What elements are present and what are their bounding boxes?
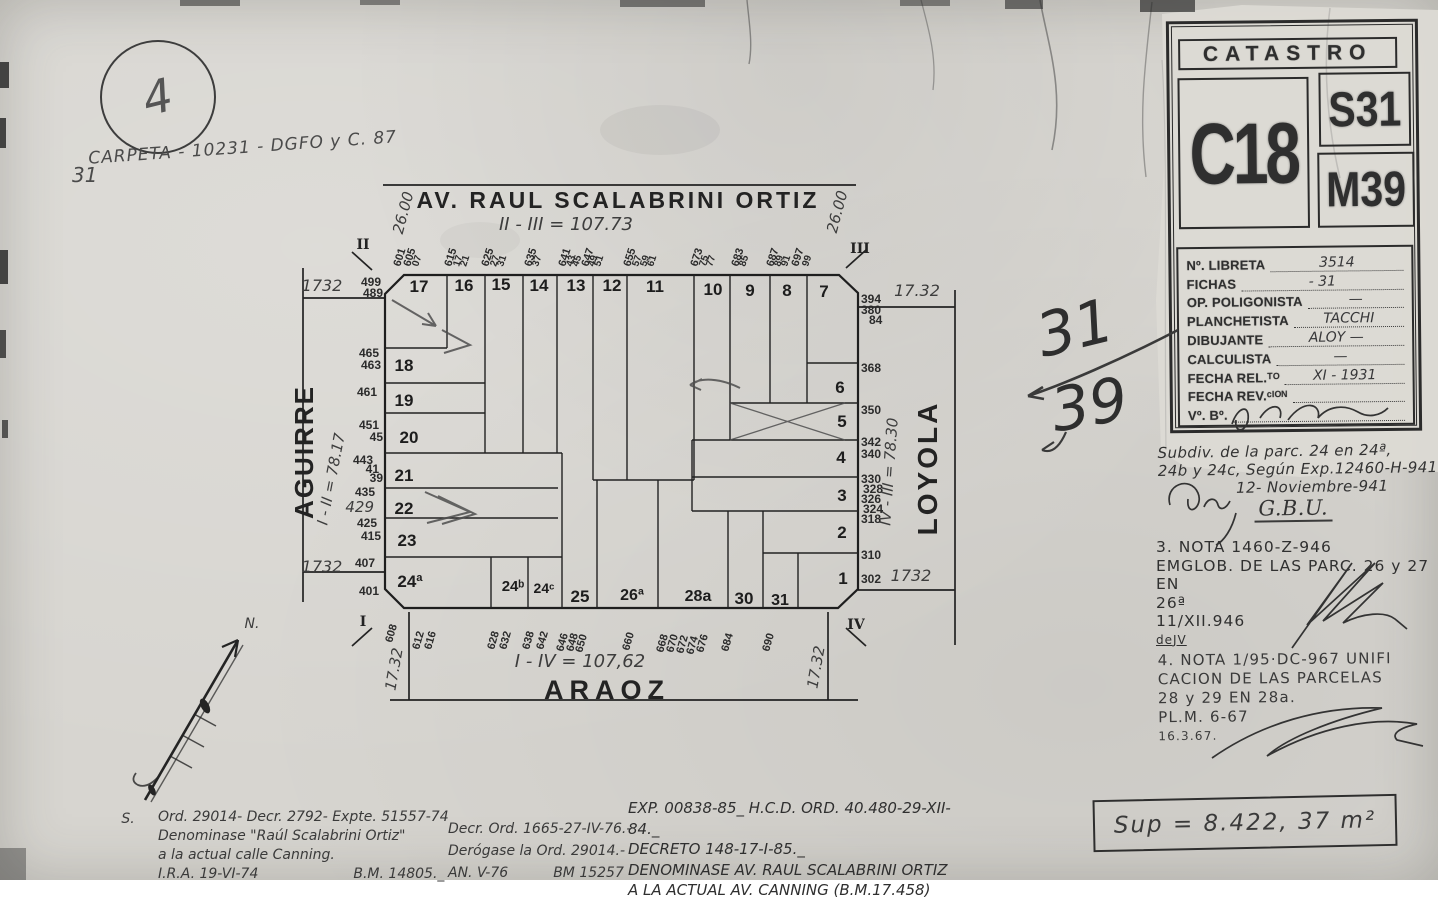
block-outline: [385, 275, 858, 608]
stamp-field-row: FICHAS - 31: [1186, 271, 1403, 292]
handwritten-annotation: 26.00: [389, 190, 418, 236]
catastro-stamp: CATASTRO C18 S31 M39 Nº. LIBRETA 3514 FI…: [1166, 19, 1422, 434]
stamp-field-row: Nº. LIBRETA 3514: [1186, 252, 1403, 273]
address-number-label: 302: [861, 572, 881, 586]
parcel-number-label: 11: [646, 277, 664, 296]
parcel-number-label: 12: [603, 276, 622, 295]
parcel-number-label: 1: [838, 569, 847, 588]
parcel-number-label: 9: [745, 281, 754, 300]
parcel-number-label: 28a: [685, 588, 712, 605]
address-number-label: 318: [861, 512, 881, 526]
address-number-label: 628: [485, 630, 502, 651]
note-line: 4. NOTA 1/95·DC-967 UNIFI: [1158, 649, 1438, 670]
field-value: 3514: [1270, 255, 1403, 272]
parcel-lines: [385, 275, 858, 608]
parcel-number-label: 16: [455, 276, 474, 295]
field-label: OP. POLIGONISTA: [1187, 294, 1303, 310]
address-number-label: 350: [861, 403, 881, 417]
parcel-number-label: 8: [782, 281, 791, 300]
parcel-number-label: 6: [835, 378, 844, 397]
address-number-label: 27: [488, 254, 502, 268]
parcel-number-label: 18: [395, 356, 414, 375]
corner-roman-numeral: III: [850, 241, 870, 257]
map-labels: AV. RAUL SCALABRINI ORTIZARAOZAGUIRRELOY…: [121, 187, 1133, 827]
address-number-label: 489: [363, 286, 383, 300]
parcel-number-label: 26ª: [620, 587, 644, 604]
seccion-code: S31: [1328, 81, 1402, 138]
field-label: Vº. Bº.: [1188, 408, 1228, 423]
address-number-label: 650: [573, 633, 590, 654]
address-number-label: 57: [630, 254, 644, 268]
address-number-label: 31: [495, 254, 509, 268]
address-number-label: 77: [704, 254, 718, 268]
ord-line: EXP. 00838-85_ H.C.D. ORD. 40.480-29-XII…: [628, 798, 968, 839]
street-name-label: AV. RAUL SCALABRINI ORTIZ: [417, 187, 820, 213]
stamp-field-row: OP. POLIGONISTA —: [1187, 289, 1404, 310]
address-number-label: 635: [522, 247, 539, 268]
address-number-label: 443: [353, 453, 373, 467]
address-number-label: 435: [355, 485, 375, 499]
parcel-number-label: 7: [819, 282, 828, 301]
address-number-label: 615: [442, 247, 459, 268]
handwritten-annotation: 17.32: [894, 281, 940, 300]
ord-line: Denominase "Raúl Scalabrini Ortiz": [158, 827, 458, 846]
address-number-label: 394: [861, 292, 881, 306]
parcel-number-label: 30: [735, 589, 754, 608]
note-line: 11/XII.946: [1156, 612, 1438, 631]
parcel-number-label: 15: [492, 275, 511, 294]
stamp-fields-table: Nº. LIBRETA 3514 FICHAS - 31 OP. POLIGON…: [1176, 245, 1415, 427]
address-number-label: 668: [654, 633, 671, 654]
handwritten-annotation: II - III = 107.73: [499, 214, 633, 235]
sheet-fraction-arrow: [1028, 330, 1178, 451]
address-number-label: 89: [772, 254, 786, 268]
handwritten-annotation: 429: [345, 498, 374, 516]
ord-line: DENOMINASE AV. RAUL SCALABRINI ORTIZ: [628, 860, 968, 881]
parcel-number-label: 5: [837, 412, 846, 431]
ord-line: B.M. 14805._: [353, 865, 444, 884]
handwritten-annotation: 1732: [302, 276, 343, 295]
address-number-label: 407: [355, 556, 375, 570]
address-number-label: 324: [863, 502, 883, 516]
handwritten-annotation: 1732: [302, 557, 343, 576]
address-number-label: 75: [697, 254, 711, 268]
address-number-label: 673: [688, 247, 705, 268]
address-number-label: 638: [520, 630, 537, 651]
field-label: Nº. LIBRETA: [1186, 257, 1265, 273]
address-number-label: 326: [861, 492, 881, 506]
corner-roman-numeral: IV: [847, 617, 866, 633]
ord-line: BM 15257: [553, 862, 624, 884]
field-value: - 31: [1241, 273, 1404, 291]
address-number-label: 605: [401, 247, 418, 268]
note-unificacion: 4. NOTA 1/95·DC-967 UNIFI CACION DE LAS …: [1158, 649, 1438, 746]
note-date: 16.3.67.: [1158, 725, 1438, 746]
parcel-number-label: 10: [704, 280, 723, 299]
address-number-label: 465: [359, 346, 379, 360]
address-number-label: 697: [789, 247, 806, 268]
note-line: 3. NOTA 1460-Z-946: [1156, 538, 1438, 557]
ordinance-note-denominacion: EXP. 00838-85_ H.C.D. ORD. 40.480-29-XII…: [628, 798, 968, 901]
field-value: [1233, 420, 1405, 423]
parcel-number-label: 31: [771, 592, 789, 609]
address-number-label: 655: [621, 247, 638, 268]
handwritten-annotation: I - IV = 107,62: [515, 651, 645, 672]
circunscripcion-code: C18: [1189, 103, 1298, 204]
address-number-label: 461: [357, 385, 377, 399]
address-number-label: 85: [737, 254, 751, 268]
corner-roman-numeral: I: [360, 614, 367, 630]
handwritten-annotation: N.: [245, 616, 260, 632]
carpeta-number: 31: [72, 163, 97, 187]
address-number-label: 07: [410, 254, 424, 268]
page-number: 4: [137, 67, 178, 126]
stamp-field-row: CALCULISTA —: [1187, 346, 1404, 367]
note-subdivision: Subdiv. de la parc. 24 en 24ª, 24b y 24c…: [1157, 440, 1438, 524]
address-number-label: 674: [684, 634, 701, 656]
north-arrow: [133, 640, 243, 802]
ord-line: A LA ACTUAL AV. CANNING (B.M.17.458): [628, 880, 968, 901]
parcel-number-label: 14: [530, 276, 549, 295]
address-number-label: 690: [760, 632, 777, 653]
address-number-label: 37: [530, 254, 544, 268]
note-line: deJV: [1156, 631, 1438, 650]
address-number-label: 45: [370, 430, 384, 444]
address-number-label: 646: [554, 632, 571, 653]
sheet-fraction-number: 31: [1030, 285, 1121, 371]
note-line: PL.M. 6-67: [1158, 706, 1438, 727]
address-number-label: 61: [645, 254, 659, 268]
address-number-label: 49: [586, 254, 600, 268]
field-label: FICHAS: [1187, 276, 1237, 292]
stamp-field-row: DIBUJANTE ALOY —: [1187, 327, 1404, 348]
address-number-label: 642: [534, 630, 551, 651]
address-number-label: 21: [458, 254, 472, 268]
stamp-manzana: M39: [1317, 152, 1415, 228]
address-number-label: 660: [620, 631, 637, 652]
address-number-label: 425: [357, 516, 377, 530]
handwritten-annotation: S.: [121, 811, 134, 827]
parcel-number-label: 25: [571, 587, 590, 606]
parcel-number-label: 21: [395, 466, 414, 485]
stamp-seccion: S31: [1318, 72, 1411, 147]
address-number-label: 676: [694, 633, 711, 654]
address-number-label: 601: [391, 247, 408, 268]
street-name-label: ARAOZ: [544, 675, 670, 705]
page-number-circle: 4: [100, 40, 216, 154]
ord-line: Decr. Ord. 1665-27-IV-76.-: [448, 818, 648, 840]
address-number-label: 342: [861, 435, 881, 449]
address-number-label: 632: [497, 630, 514, 651]
handwritten-annotation: 1732: [891, 566, 932, 585]
street-name-label: LOYOLA: [912, 401, 943, 536]
stamp-field-row: Vº. Bº.: [1188, 402, 1405, 423]
note-line: CACION DE LAS PARCELAS: [1158, 668, 1438, 689]
parcel-number-label: 23: [398, 531, 417, 550]
address-number-label: 45: [570, 254, 584, 268]
address-number-label: 330: [861, 472, 881, 486]
address-number-label: 672: [674, 634, 691, 655]
ordinance-note-canning: Ord. 29014- Decr. 2792- Expte. 51557-74 …: [158, 808, 458, 884]
parcel-number-label: 24ᵇ: [502, 578, 525, 595]
address-number-label: 39: [370, 471, 384, 485]
parcel-number-label: 17: [410, 277, 429, 296]
field-label: DIBUJANTE: [1187, 332, 1263, 348]
stamp-field-row: FECHA REV.ᶜᴵᴼᴺ: [1188, 383, 1405, 404]
field-value: XI - 1931: [1285, 367, 1405, 384]
note-line: 26ª: [1156, 594, 1438, 613]
address-number-label: 84: [869, 313, 883, 327]
handwritten-annotation: 26.00: [823, 189, 852, 235]
ord-line: AN. V-76: [448, 862, 508, 884]
address-number-label: 310: [861, 548, 881, 562]
note-date: 12- Noviembre-941: [1236, 476, 1438, 497]
ord-line: a la actual calle Canning.: [158, 846, 458, 865]
scanned-cadastral-sheet: 4 CARPETA - 10231 - DGFO y C. 87 31 CATA…: [0, 0, 1438, 880]
pencil-annotations: [392, 300, 845, 524]
field-label: FECHA REL.ᵀᴼ: [1188, 370, 1280, 386]
stamp-field-row: PLANCHETISTA TACCHI: [1187, 308, 1404, 329]
address-number-label: 451: [359, 418, 379, 432]
field-label: FECHA REV.ᶜᴵᴼᴺ: [1188, 388, 1288, 404]
address-number-label: 59: [638, 254, 652, 268]
address-number-label: 328: [863, 482, 883, 496]
address-number-label: 51: [592, 254, 606, 268]
ord-line: Derógase la Ord. 29014.-: [448, 840, 648, 862]
address-number-label: 368: [861, 361, 881, 375]
address-number-label: 616: [422, 630, 439, 651]
address-number-label: 684: [719, 631, 736, 653]
address-number-label: 647: [579, 247, 596, 268]
address-number-label: 41: [366, 462, 380, 476]
field-label: CALCULISTA: [1187, 351, 1271, 367]
note-englobamiento: 3. NOTA 1460-Z-946 EMGLOB. DE LAS PARC. …: [1156, 538, 1438, 649]
handwritten-annotation: I - II = 78.17: [313, 431, 349, 526]
field-value: TACCHI: [1294, 311, 1404, 328]
address-number-label: 683: [729, 247, 746, 268]
parcel-number-label: 20: [400, 428, 419, 447]
field-value: —: [1276, 349, 1404, 366]
address-number-label: 43: [564, 254, 578, 268]
note-line: 28 y 29 EN 28a.: [1158, 687, 1438, 708]
surface-value: Sup = 8.422, 37 m²: [1114, 807, 1377, 838]
parcel-number-label: 24ª: [397, 572, 423, 591]
address-number-label: 641: [556, 247, 573, 268]
note-line: EMGLOB. DE LAS PARC. 26 y 27 EN: [1156, 557, 1438, 594]
address-number-label: 670: [664, 633, 681, 654]
stamp-circunscripcion: C18: [1177, 77, 1310, 229]
sheet-fraction-number: 39: [1046, 364, 1133, 446]
parcel-number-label: 13: [567, 276, 586, 295]
address-number-label: 499: [361, 275, 381, 289]
parcel-number-label: 24ᶜ: [534, 580, 555, 596]
address-number-label: 340: [861, 447, 881, 461]
ord-line: I.R.A. 19-VI-74: [158, 865, 258, 884]
ordinance-note-derogacion: Decr. Ord. 1665-27-IV-76.- Derógase la O…: [448, 818, 648, 884]
manzana-code: M39: [1326, 161, 1406, 218]
handwritten-annotation: 17.32: [803, 644, 828, 689]
address-number-label: 17: [451, 254, 465, 268]
parcel-number-label: 2: [837, 523, 846, 542]
address-number-label: 91: [779, 254, 793, 268]
parcel-number-label: 22: [395, 499, 414, 518]
parcel-number-label: 4: [836, 448, 846, 467]
field-value: ALOY —: [1268, 330, 1404, 347]
address-number-label: 648: [564, 632, 581, 653]
address-number-label: 380: [861, 303, 881, 317]
street-lines: [303, 185, 955, 700]
address-number-label: 401: [359, 584, 379, 598]
note-initials: G.B.U.: [1254, 496, 1332, 523]
address-number-label: 687: [764, 247, 781, 268]
address-number-label: 99: [800, 254, 814, 268]
field-value: —: [1308, 292, 1404, 309]
street-name-label: AGUIRRE: [289, 385, 319, 519]
field-label: PLANCHETISTA: [1187, 313, 1289, 329]
handwritten-annotation: 17.32: [381, 646, 406, 691]
ord-line: Ord. 29014- Decr. 2792- Expte. 51557-74: [158, 808, 458, 827]
address-number-label: 608: [383, 623, 400, 644]
corner-roman-numeral: II: [356, 237, 369, 253]
address-number-label: 415: [361, 529, 381, 543]
address-number-label: 612: [410, 630, 427, 651]
stamp-title: CATASTRO: [1178, 37, 1397, 70]
stamp-field-row: FECHA REL.ᵀᴼ XI - 1931: [1187, 365, 1404, 386]
address-number-label: 463: [361, 358, 381, 372]
parcel-number-label: 19: [395, 391, 414, 410]
surface-total-box: Sup = 8.422, 37 m²: [1092, 794, 1397, 852]
handwritten-annotation: IV - III = 78.30: [876, 417, 901, 526]
address-number-label: 625: [479, 247, 496, 268]
parcel-number-label: 3: [837, 486, 846, 505]
ord-line: DECRETO 148-17-I-85._: [628, 839, 968, 860]
